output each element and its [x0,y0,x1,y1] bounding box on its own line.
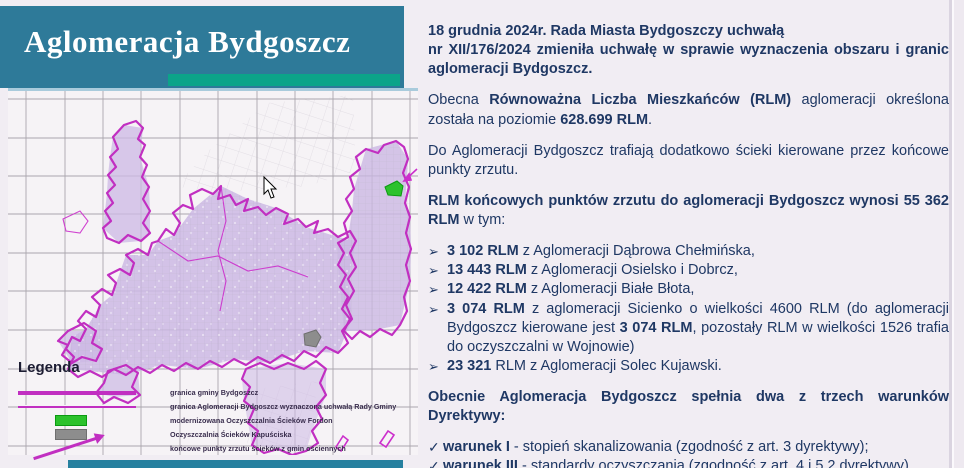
legend-symbol-cell [18,391,170,395]
bullet-text: 12 422 RLM z Aglomeracji Białe Błota, [447,280,949,299]
legend-title: Legenda [18,359,268,376]
legend-label: Oczyszczalnia Ścieków Kapuściska [170,430,291,439]
text-run: RLM końcowych punktów zrzutu do aglomera… [428,193,949,228]
arrow-bullet-icon: ➢ [428,280,447,299]
text-run: - standardy oczyszczania (zgodność z art… [518,458,913,468]
text-run: 628.699 RLM [560,112,648,128]
legend-symbol-cell [18,405,170,408]
bullet-text: warunek III - standardy oczyszczania (zg… [443,457,949,468]
text-run: 3 074 RLM [620,320,693,336]
bullet-item: ➢12 422 RLM z Aglomeracji Białe Błota, [428,280,949,299]
text-run: Równoważna Liczba Mieszkańców (RLM) [489,92,791,108]
bullet-text: 23 321 RLM z Aglomeracji Solec Kujawski. [447,357,949,376]
text-run: . [648,112,652,128]
info-paragraph: 18 grudnia 2024r. Rada Miasta Bydgoszczy… [428,22,949,79]
legend-item: modernizowana Oczyszczalnia Ścieków Ford… [18,414,268,427]
green-rect-icon [55,415,87,426]
text-run: 12 422 RLM [447,281,527,297]
check-item: ✓warunek I - stopień skanalizowania (zgo… [428,438,949,457]
text-run: 13 443 RLM [447,262,527,278]
arrow-bullet-icon: ➢ [428,300,447,357]
legend-item: granica Aglomeracji Bydgoszcz wyznaczona… [18,400,268,413]
legend-symbol-cell [18,415,170,426]
check-item: ✓warunek III - standardy oczyszczania (z… [428,457,949,468]
text-run: z Aglomeracji Osielsko i Dobrcz, [527,262,738,278]
text-run: warunek III [443,458,518,468]
legend-label: końcowe punkty zrzutu ścieków z gmin ośc… [170,444,346,453]
legend-symbol-cell [18,447,170,450]
text-run: - stopień skanalizowania (zgodność z art… [510,439,869,455]
bullet-text: 3 074 RLM z aglomeracji Sicienko o wielk… [447,300,949,357]
arrow-bullet-icon: ➢ [428,242,447,261]
arrow-bullet-icon: ➢ [428,357,447,376]
legend-item: granica gminy Bydgoszcz [18,386,268,399]
legend-label: modernizowana Oczyszczalnia Ścieków Ford… [170,416,333,425]
text-run: z Aglomeracji Dąbrowa Chełmińska, [519,243,755,259]
text-run: nr XII/176/2024 zmieniła uchwałę w spraw… [428,42,949,77]
info-paragraph: Do Aglomeracji Bydgoszcz trafiają dodatk… [428,142,949,180]
text-run: 3 102 RLM [447,243,519,259]
bullet-text: 13 443 RLM z Aglomeracji Osielsko i Dobr… [447,261,949,280]
legend-label: granica Aglomeracji Bydgoszcz wyznaczona… [170,402,396,411]
bottom-accent-bar [68,460,403,468]
info-panel: 18 grudnia 2024r. Rada Miasta Bydgoszczy… [428,22,949,468]
gray-rect-icon [55,429,87,440]
text-run: 23 321 [447,358,491,374]
info-paragraph: Obecnie Aglomeracja Bydgoszcz spełnia dw… [428,388,949,426]
text-run: z Aglomeracji Białe Błota, [527,281,695,297]
legend-item: Oczyszczalnia Ścieków Kapuściska [18,428,268,441]
info-paragraph: Obecna Równoważna Liczba Mieszkańców (RL… [428,91,949,129]
bullet-group: ✓warunek I - stopień skanalizowania (zgo… [428,438,949,468]
slide-edge [952,0,964,468]
thin-line-icon [18,405,136,408]
text-run: Do Aglomeracji Bydgoszcz trafiają dodatk… [428,143,949,178]
legend-item: końcowe punkty zrzutu ścieków z gmin ośc… [18,442,268,455]
title-accent-bar [168,74,400,86]
bullet-item: ➢23 321 RLM z Aglomeracji Solec Kujawski… [428,357,949,376]
info-paragraph: RLM końcowych punktów zrzutu do aglomera… [428,192,949,230]
check-icon: ✓ [428,438,443,457]
map-panel: Legenda granica gminy Bydgoszczgranica A… [8,88,418,455]
text-run: Obecnie Aglomeracja Bydgoszcz spełnia dw… [428,389,949,424]
thick-line-icon [18,391,136,395]
text-run: w tym: [459,212,505,228]
bullet-text: warunek I - stopień skanalizowania (zgod… [443,438,949,457]
text-run: warunek I [443,439,510,455]
check-icon: ✓ [428,457,443,468]
text-run: 3 074 RLM [447,301,525,317]
bullet-group: ➢3 102 RLM z Aglomeracji Dąbrowa Chełmiń… [428,242,949,376]
bullet-item: ➢3 102 RLM z Aglomeracji Dąbrowa Chełmiń… [428,242,949,261]
legend-label: granica gminy Bydgoszcz [170,388,258,397]
text-run: 18 grudnia 2024r. Rada Miasta Bydgoszczy… [428,23,784,39]
map-legend: Legenda granica gminy Bydgoszczgranica A… [18,359,268,456]
text-run: RLM z Aglomeracji Solec Kujawski. [491,358,721,374]
bullet-item: ➢3 074 RLM z aglomeracji Sicienko o wiel… [428,300,949,357]
bullet-item: ➢13 443 RLM z Aglomeracji Osielsko i Dob… [428,261,949,280]
arrow-bullet-icon: ➢ [428,261,447,280]
text-run: Obecna [428,92,489,108]
page-title: Aglomeracja Bydgoszcz [0,6,404,60]
bullet-text: 3 102 RLM z Aglomeracji Dąbrowa Chełmińs… [447,242,949,261]
